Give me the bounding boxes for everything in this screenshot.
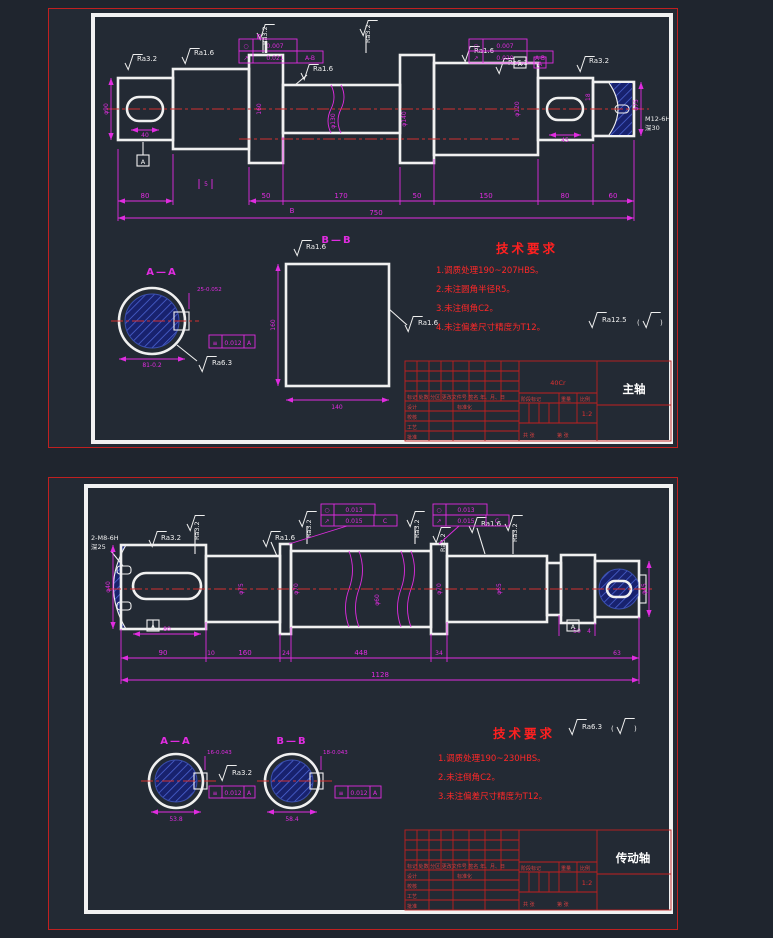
section-letter: B bbox=[257, 33, 262, 41]
dim-label: 170 bbox=[334, 192, 347, 200]
section-b-b: B—B Ra1.6 160 140 Ra1.6 bbox=[270, 235, 439, 411]
dim-label: 4 bbox=[587, 628, 591, 635]
cad-canvas: { "sheet1": { "name_plate": "主轴", "mater… bbox=[0, 0, 773, 938]
fcf-value: 0.012 bbox=[350, 790, 367, 797]
keyway-dim: 18-0.043 bbox=[323, 750, 348, 756]
thread-label: M12-6H bbox=[645, 115, 670, 123]
fcf-datum: C bbox=[495, 518, 499, 525]
tech-item: 1.调质处理190~230HBS。 bbox=[438, 753, 546, 764]
ra-label: Ra3.2 bbox=[232, 769, 252, 777]
fcf-value: 0.013 bbox=[345, 507, 362, 514]
tb-label: 重量 bbox=[561, 865, 571, 872]
fcf-symbol: ↗ bbox=[436, 518, 441, 525]
fcf-datum: A bbox=[247, 790, 252, 797]
tb-label: 校核 bbox=[407, 883, 417, 890]
paren: ( bbox=[637, 319, 640, 327]
dia-label: φ65 bbox=[496, 583, 503, 595]
fcf-datum: A bbox=[373, 790, 378, 797]
fcf-value: 0.007 bbox=[496, 43, 513, 50]
ra-label: Ra3.2 bbox=[511, 523, 519, 542]
ra-label: Ra3.2 bbox=[137, 55, 157, 63]
ra-label: Ra1.6 bbox=[306, 243, 327, 251]
fcf-symbol: ○ bbox=[243, 43, 248, 50]
sheet2-drawing: 2-M8-6H 深25 80 90 10 160 24 448 34 4 50 … bbox=[49, 478, 679, 931]
dia-dim: 53.8 bbox=[169, 816, 183, 823]
dia-label: φ90 bbox=[103, 103, 110, 115]
ra-label: Ra1.6 bbox=[275, 534, 296, 542]
tech-title: 技术要求 bbox=[493, 726, 555, 741]
tb-label: 阶段标记 bbox=[521, 396, 541, 403]
sheet1-drawing: 80 50 170 50 150 80 60 750 5 40 45 18 φ9… bbox=[49, 9, 679, 449]
section-letter: B bbox=[290, 207, 295, 215]
tb-mark-row: 标记 处数 分区 更改文件号 签名 年、月、日 bbox=[407, 863, 505, 870]
dimension-chain: 80 50 170 50 150 80 60 750 5 40 45 18 bbox=[118, 93, 634, 221]
ra-other-label: Ra6.3 bbox=[582, 723, 602, 731]
tb-label: 标准化 bbox=[457, 873, 472, 880]
tb-label: 阶段标记 bbox=[521, 865, 541, 872]
paren: ) bbox=[660, 319, 663, 327]
dia-label: 160 bbox=[256, 103, 263, 115]
fcf-value: 0.020 bbox=[496, 55, 513, 62]
dim-label: 160 bbox=[270, 319, 277, 331]
dim-label: 63 bbox=[613, 650, 621, 657]
fcf-value: 0.015 bbox=[457, 518, 474, 525]
roughness-marks: Ra3.2 Ra1.6 Ra1.6 Ra3.2 Ra3.2 Ra1.6 Ra6.… bbox=[125, 21, 609, 86]
tb-label: 设计 bbox=[407, 873, 417, 880]
fcf-symbol: ○ bbox=[473, 43, 478, 50]
dim-label: 448 bbox=[354, 649, 367, 657]
roughness-icon bbox=[643, 313, 661, 328]
thread-depth-label: 深25 bbox=[91, 542, 106, 551]
dim-overall: 1128 bbox=[371, 671, 389, 679]
keyway-length: 40 bbox=[141, 132, 149, 139]
shaft-main-view bbox=[107, 55, 649, 163]
dimension-chain: 80 90 10 160 24 448 34 4 50 63 1128 bbox=[121, 615, 639, 684]
tb-label: 标准化 bbox=[457, 404, 472, 411]
dia-label: φ40 bbox=[105, 581, 112, 593]
tb-label: 工艺 bbox=[407, 894, 417, 900]
fcf-symbol: ≡ bbox=[338, 790, 343, 797]
dia-label: φ70 bbox=[436, 583, 443, 595]
datum-flags: A A A B B bbox=[137, 33, 546, 215]
keyway-dim: 16-0.043 bbox=[207, 750, 232, 756]
section-title: A—A bbox=[146, 267, 177, 278]
part-name: 主轴 bbox=[623, 382, 646, 396]
keyway-length: 45 bbox=[561, 137, 569, 144]
drawing-sheet-2: 2-M8-6H 深25 80 90 10 160 24 448 34 4 50 … bbox=[48, 477, 678, 930]
tb-label: 批准 bbox=[407, 903, 417, 910]
dia-dim: 81-0.2 bbox=[142, 362, 162, 369]
diameter-dims: φ40 φ75 φ70 φ60 φ70 φ65 φ45 bbox=[105, 545, 649, 629]
keyway-left bbox=[133, 573, 201, 599]
tech-item: 3.未注偏差尺寸精度为T12。 bbox=[438, 791, 547, 802]
ra-label: Ra3.2 bbox=[589, 57, 609, 65]
fcf-symbol: ○ bbox=[436, 507, 441, 514]
tb-scale-value: 1:2 bbox=[582, 879, 592, 887]
fcf-value: 0.012 bbox=[224, 790, 241, 797]
ra-label: Ra1.6 bbox=[313, 65, 334, 73]
tech-item: 1.调质处理190~207HBS。 bbox=[436, 265, 544, 276]
tb-label: 第 张 bbox=[557, 432, 569, 439]
section-b-b: B—B 18-0.043 58.4 ≡ 0.012 A bbox=[257, 736, 381, 823]
fcf-symbol: ≡ bbox=[212, 790, 217, 797]
tb-label: 重量 bbox=[561, 396, 571, 403]
fcf-symbol: ↗ bbox=[324, 518, 329, 525]
tb-mark-row: 标记 处数 分区 更改文件号 签名 年、月、日 bbox=[407, 394, 505, 401]
dim-label: 34 bbox=[435, 650, 443, 657]
datum-label: A bbox=[141, 158, 146, 166]
fcf-datum: A-B bbox=[305, 55, 315, 62]
ra-label: Ra3.2 bbox=[413, 519, 421, 538]
fcf-symbol: ↗ bbox=[473, 55, 478, 62]
tech-title: 技术要求 bbox=[496, 241, 558, 256]
dim-label: 50 bbox=[262, 192, 271, 200]
fcf-value: 0.007 bbox=[266, 43, 283, 50]
dim-overall: 750 bbox=[369, 209, 382, 217]
keyway-width: 18 bbox=[585, 93, 592, 101]
section-a-a: A—A 25-0.052 81-0.2 ≡ 0.012 A Ra6.3 bbox=[111, 267, 255, 372]
section-title: A—A bbox=[160, 736, 191, 747]
dim-label: 160 bbox=[238, 649, 251, 657]
paren: ( bbox=[611, 725, 614, 733]
keyway-dim: 25-0.052 bbox=[197, 287, 222, 293]
title-block: 标记 处数 分区 更改文件号 签名 年、月、日 设计 校核 工艺 批准 标准化 … bbox=[405, 830, 671, 910]
fcf-value: 0.012 bbox=[224, 340, 241, 347]
tb-label: 第 张 bbox=[557, 901, 569, 908]
thread-label: 2-M8-6H bbox=[91, 534, 119, 542]
title-block: 标记 处数 分区 更改文件号 签名 年、月、日 设计 校核 工艺 批准 标准化 … bbox=[405, 361, 671, 441]
fcf-value: 0.013 bbox=[457, 507, 474, 514]
tech-item: 2.未注倒角C2。 bbox=[438, 772, 500, 783]
dim-label: 10 bbox=[207, 650, 215, 657]
dia-label: φ140 bbox=[401, 111, 408, 127]
tech-item: 2.未注圆角半径R5。 bbox=[436, 284, 515, 295]
tb-label: 共 张 bbox=[523, 432, 535, 439]
tolerance-frames: ○ 0.013 ↗ 0.015 C ○ 0.013 ↗ 0.015 C bbox=[289, 504, 509, 544]
tech-item: 3.未注倒角C2。 bbox=[436, 303, 498, 314]
ra-label: Ra6.3 bbox=[212, 359, 232, 367]
ra-label: Ra1.6 bbox=[194, 49, 215, 57]
tb-label: 比例 bbox=[580, 396, 590, 403]
datum-label: A bbox=[571, 623, 576, 631]
ra-label: Ra3.2 bbox=[193, 521, 201, 540]
paren: ) bbox=[634, 725, 637, 733]
keyway-length: 80 bbox=[163, 626, 171, 633]
dim-label: 90 bbox=[159, 649, 168, 657]
thread-depth-label: 深30 bbox=[645, 123, 660, 132]
tb-label: 共 张 bbox=[523, 901, 535, 908]
roughness-icon bbox=[617, 719, 635, 734]
dia-dim: 58.4 bbox=[285, 816, 299, 823]
tb-material: 40Cr bbox=[550, 379, 566, 387]
dia-label: φ75 bbox=[238, 583, 245, 595]
datum-label: A bbox=[538, 61, 543, 68]
tb-label: 工艺 bbox=[407, 425, 417, 431]
dia-label: φ120 bbox=[514, 101, 521, 117]
tb-label: 校核 bbox=[407, 414, 417, 421]
dim-label: 24 bbox=[282, 650, 290, 657]
dia-label: φ130 bbox=[330, 113, 337, 129]
fcf-value: 0.021 bbox=[266, 55, 283, 62]
dim-label: 80 bbox=[561, 192, 570, 200]
dia-label: φ70 bbox=[293, 583, 300, 595]
fcf-symbol: ○ bbox=[324, 507, 329, 514]
dia-label: φ45 bbox=[641, 583, 648, 595]
fcf-symbol: ↗ bbox=[243, 55, 248, 62]
ra-other-label: Ra12.5 bbox=[602, 316, 627, 324]
ra-label: Ra3.2 bbox=[364, 24, 372, 43]
datum-label: A bbox=[518, 60, 523, 68]
dia-label: φ75 bbox=[633, 99, 640, 111]
tech-item: 4.未注偏差尺寸精度为T12。 bbox=[436, 322, 545, 333]
fcf-datum: A bbox=[247, 340, 252, 347]
tech-requirements: 技术要求 1.调质处理190~207HBS。 2.未注圆角半径R5。 3.未注倒… bbox=[436, 241, 663, 333]
part-name: 传动轴 bbox=[615, 851, 651, 865]
dim-label: 140 bbox=[331, 404, 343, 411]
dim-label: 5 bbox=[204, 181, 208, 188]
section-title: B—B bbox=[276, 736, 307, 747]
ra-label: Ra3.2 bbox=[161, 534, 181, 542]
dim-label: 50 bbox=[413, 192, 422, 200]
tech-requirements: 技术要求 Ra6.3 ( ) 1.调质处理190~230HBS。 2.未注倒角C… bbox=[438, 719, 637, 803]
dim-label: 80 bbox=[141, 192, 150, 200]
fcf-symbol: ≡ bbox=[212, 340, 217, 347]
tb-label: 批准 bbox=[407, 434, 417, 441]
fcf-datum: C bbox=[383, 518, 387, 525]
dia-label: φ60 bbox=[374, 594, 381, 606]
ra-label: Ra3.2 bbox=[305, 519, 313, 538]
tolerance-frames: ○ 0.007 ↗ 0.021 A-B ○ 0.007 ↗ 0.020 A-B bbox=[239, 39, 553, 63]
dim-label: 150 bbox=[479, 192, 492, 200]
fcf-value: 0.015 bbox=[345, 518, 362, 525]
tb-scale-value: 1:2 bbox=[582, 410, 592, 418]
tb-label: 比例 bbox=[580, 865, 590, 872]
dim-label: 60 bbox=[609, 192, 618, 200]
tb-label: 设计 bbox=[407, 404, 417, 411]
drawing-sheet-1: 80 50 170 50 150 80 60 750 5 40 45 18 φ9… bbox=[48, 8, 678, 448]
section-a-a: A—A 16-0.043 53.8 Ra3.2 ≡ 0.012 A bbox=[141, 736, 255, 823]
